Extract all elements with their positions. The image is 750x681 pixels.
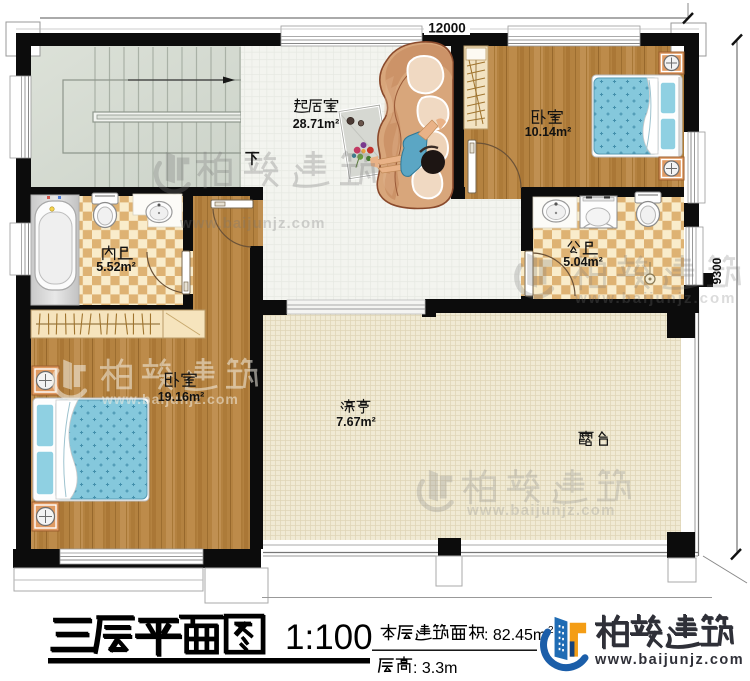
svg-text:www.baijunjz.com: www.baijunjz.com: [179, 215, 325, 232]
svg-text:www.baijunjz.com: www.baijunjz.com: [594, 652, 744, 668]
svg-text:12000: 12000: [428, 21, 466, 36]
svg-text:www.baijunjz.com: www.baijunjz.com: [466, 502, 616, 519]
svg-text:5.04m²: 5.04m²: [563, 255, 603, 269]
svg-text:19.16m²: 19.16m²: [158, 390, 205, 404]
svg-text:7.67m²: 7.67m²: [336, 415, 376, 429]
svg-text:: 3.3m: : 3.3m: [413, 660, 457, 677]
svg-text:9300: 9300: [710, 257, 724, 284]
svg-text:28.71m²: 28.71m²: [293, 117, 340, 131]
svg-text:5.52m²: 5.52m²: [96, 260, 136, 274]
svg-text:www.baijunjz.com: www.baijunjz.com: [574, 290, 736, 307]
svg-text:10.14m²: 10.14m²: [525, 125, 572, 139]
svg-text:1:100: 1:100: [285, 618, 373, 657]
svg-text:: 82.45m: : 82.45m: [484, 627, 546, 644]
